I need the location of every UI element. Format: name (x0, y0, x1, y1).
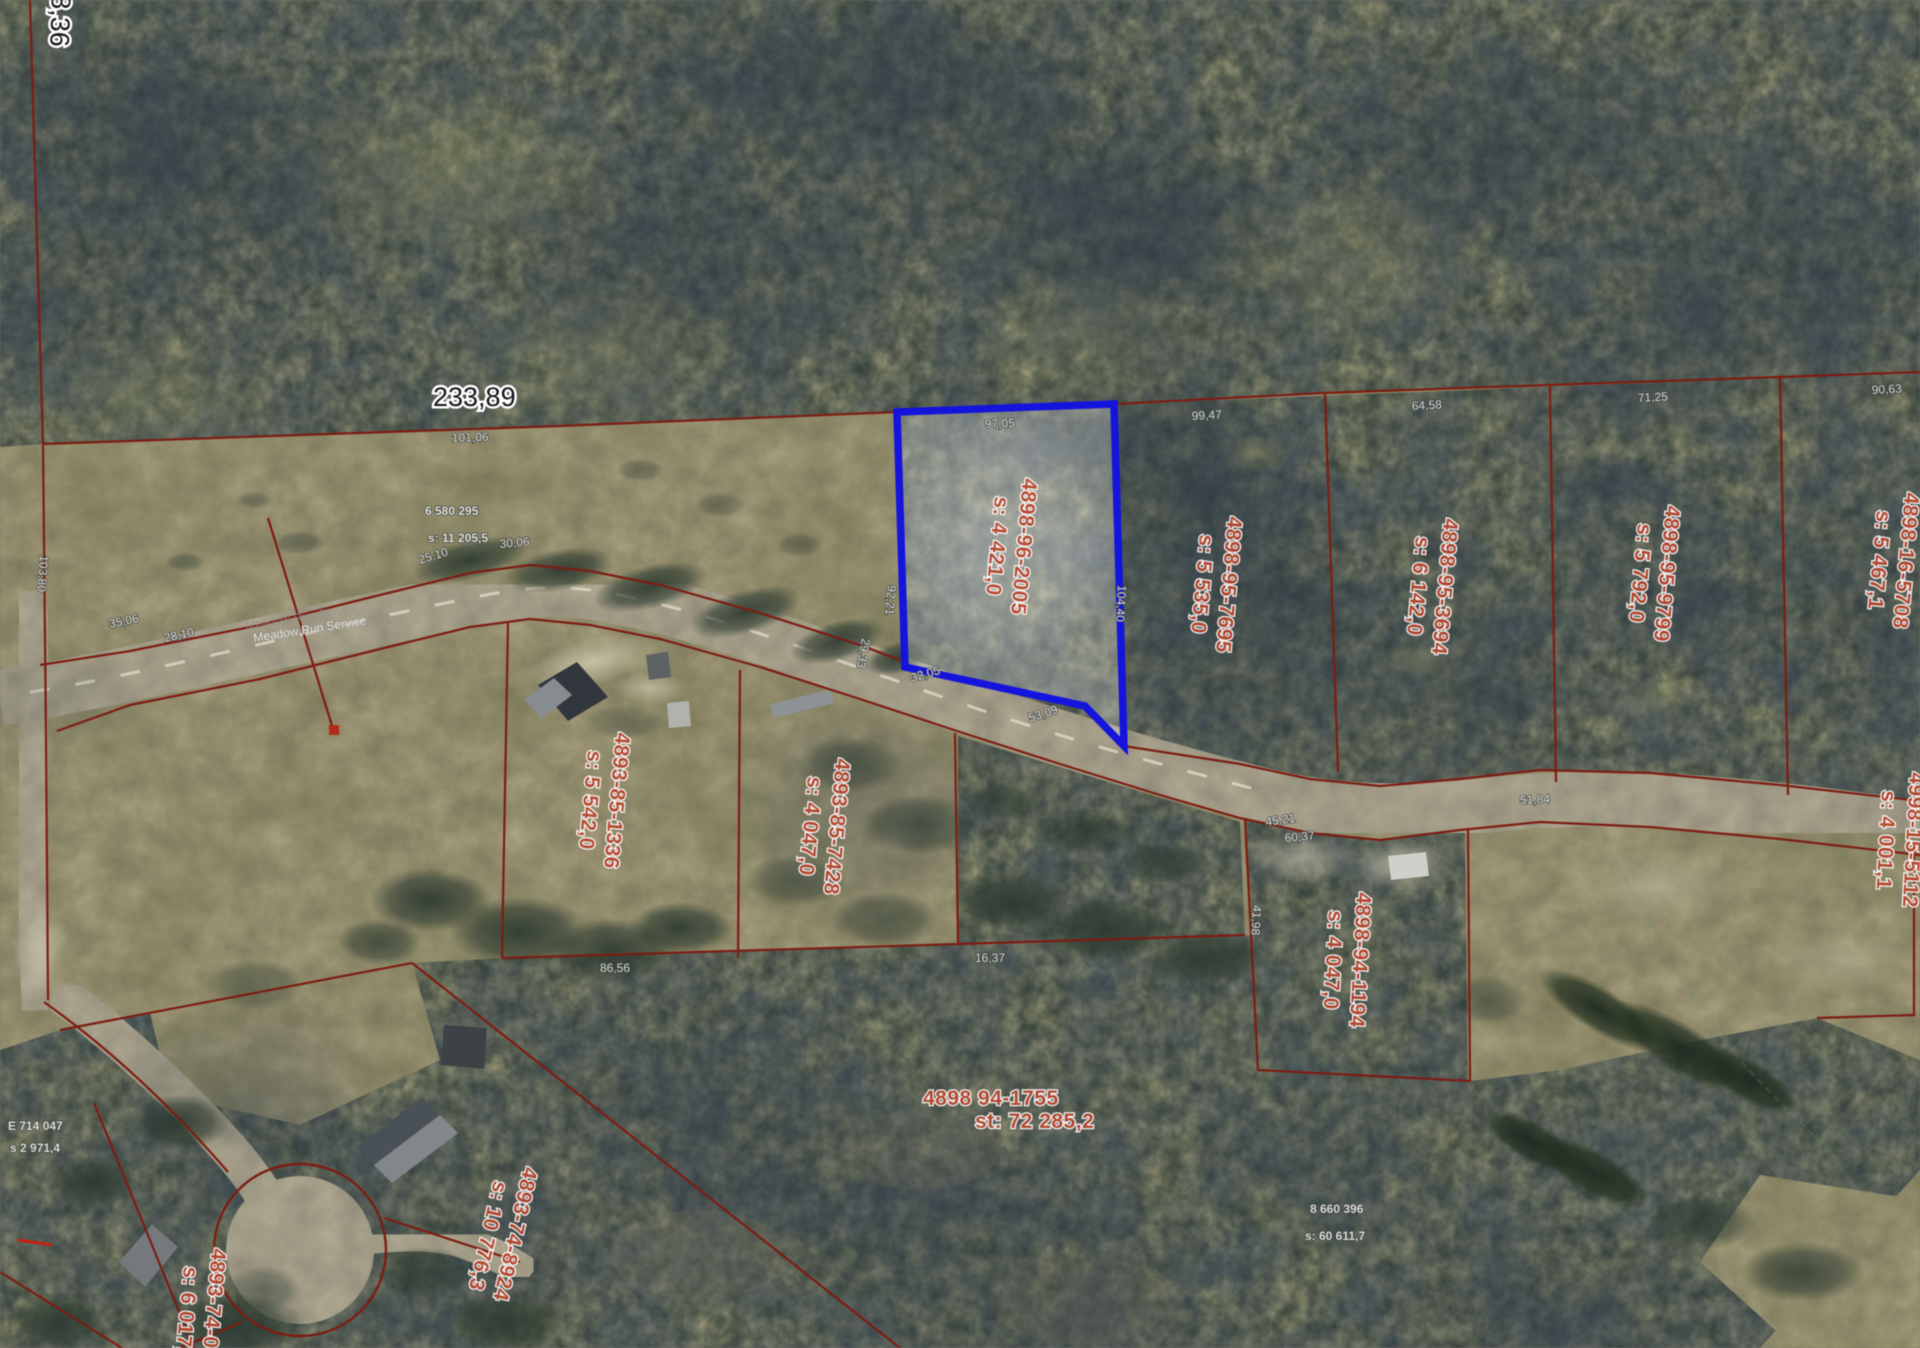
svg-text:6 580 295: 6 580 295 (425, 504, 479, 518)
svg-text:60,37: 60,37 (1284, 828, 1315, 845)
svg-text:101,06: 101,06 (452, 430, 489, 445)
svg-text:103,80: 103,80 (34, 555, 51, 593)
svg-text:104,40: 104,40 (1113, 585, 1129, 623)
svg-text:s 2 971,4: s 2 971,4 (10, 1141, 60, 1155)
svg-text:71,25: 71,25 (1637, 389, 1668, 405)
svg-text:8 660 396: 8 660 396 (1310, 1202, 1364, 1216)
svg-text:99,47: 99,47 (1191, 407, 1222, 423)
svg-text:4898 94-1755: 4898 94-1755 (923, 1087, 1059, 1110)
svg-text:51,84: 51,84 (1520, 792, 1551, 807)
svg-text:E 714 047: E 714 047 (8, 1119, 63, 1133)
svg-text:86,56: 86,56 (600, 961, 630, 975)
svg-text:97,05: 97,05 (985, 416, 1016, 431)
svg-text:41,98: 41,98 (1248, 905, 1264, 936)
svg-text:16,37: 16,37 (975, 951, 1005, 965)
svg-text:st: 72 285,2: st: 72 285,2 (975, 1110, 1094, 1133)
svg-text:s: 11 205,5: s: 11 205,5 (428, 531, 488, 545)
svg-text:90,63: 90,63 (1871, 381, 1902, 397)
svg-text:30,06: 30,06 (499, 534, 530, 551)
svg-text:8,36: 8,36 (44, 0, 76, 47)
svg-text:92,21: 92,21 (882, 585, 899, 616)
svg-text:233,89: 233,89 (433, 382, 516, 412)
svg-text:64,58: 64,58 (1411, 397, 1442, 413)
svg-text:s: 60 611,7: s: 60 611,7 (1305, 1229, 1365, 1243)
